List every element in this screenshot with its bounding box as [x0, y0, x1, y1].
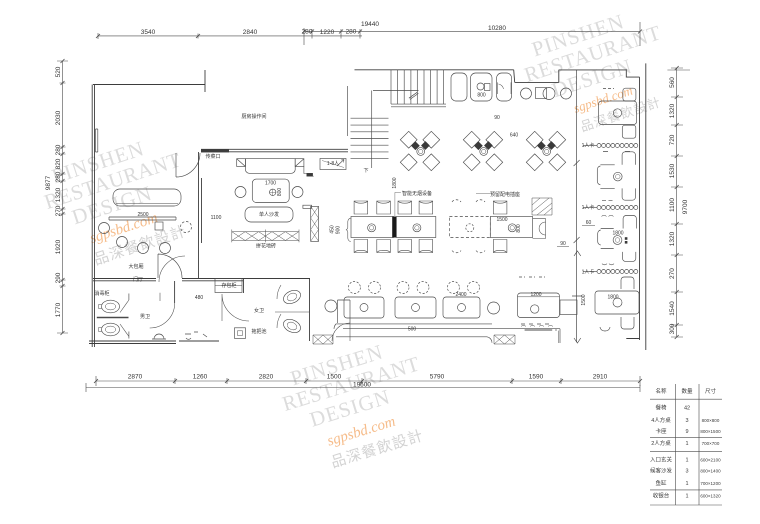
svg-text:800×1500: 800×1500: [700, 429, 721, 434]
svg-text:700×1200: 700×1200: [700, 481, 721, 486]
svg-text:1800: 1800: [612, 231, 623, 237]
svg-text:消毒柜: 消毒柜: [94, 290, 109, 297]
svg-text:2820: 2820: [259, 374, 274, 381]
svg-text:1530: 1530: [669, 163, 676, 178]
svg-text:560: 560: [669, 77, 676, 88]
svg-text:1220: 1220: [320, 29, 335, 36]
svg-text:90: 90: [494, 115, 500, 121]
svg-text:800: 800: [477, 93, 486, 99]
svg-text:1200: 1200: [530, 292, 541, 298]
svg-text:女卫: 女卫: [254, 307, 264, 314]
svg-text:9700: 9700: [682, 199, 689, 214]
svg-text:传菜口: 传菜口: [205, 153, 220, 160]
svg-text:1590: 1590: [529, 374, 544, 381]
svg-text:290: 290: [55, 272, 62, 283]
svg-text:拖把池: 拖把池: [251, 328, 266, 335]
svg-text:1人卡: 1人卡: [582, 204, 595, 211]
svg-text:1: 1: [685, 458, 688, 464]
svg-text:640: 640: [510, 133, 519, 139]
svg-text:数量: 数量: [681, 387, 693, 395]
svg-text:单人沙发: 单人沙发: [259, 211, 279, 218]
svg-text:600×2100: 600×2100: [700, 458, 721, 463]
svg-text:2840: 2840: [243, 29, 258, 36]
svg-text:3: 3: [685, 418, 688, 424]
svg-text:42: 42: [684, 406, 690, 412]
svg-text:1: 1: [685, 481, 688, 487]
svg-text:1-8人: 1-8人: [327, 161, 339, 167]
svg-text:1700: 1700: [265, 181, 276, 187]
svg-text:820: 820: [55, 158, 62, 169]
svg-text:2910: 2910: [593, 374, 608, 381]
svg-text:800×1400: 800×1400: [700, 469, 721, 474]
svg-text:1260: 1260: [193, 374, 208, 381]
svg-text:餐椅: 餐椅: [655, 404, 667, 412]
svg-text:2400: 2400: [455, 292, 466, 298]
svg-text:90: 90: [560, 241, 566, 247]
svg-text:9: 9: [685, 429, 688, 435]
svg-text:3: 3: [685, 469, 688, 475]
svg-text:1800: 1800: [607, 295, 618, 301]
svg-text:厨房操作间: 厨房操作间: [241, 113, 266, 120]
svg-text:1: 1: [685, 441, 688, 447]
svg-text:700×700: 700×700: [702, 441, 720, 446]
svg-text:280: 280: [55, 171, 62, 182]
svg-text:入口玄关: 入口玄关: [650, 456, 673, 464]
svg-text:4人方桌: 4人方桌: [651, 416, 671, 424]
svg-text:520: 520: [55, 66, 62, 77]
svg-text:卡座: 卡座: [655, 427, 667, 435]
svg-text:280: 280: [55, 144, 62, 155]
svg-text:19600: 19600: [353, 382, 371, 389]
svg-text:1800: 1800: [392, 177, 398, 188]
svg-text:480: 480: [195, 295, 204, 301]
svg-text:1320: 1320: [669, 103, 676, 118]
svg-text:1100: 1100: [669, 198, 676, 212]
svg-text:280: 280: [302, 29, 313, 36]
svg-text:预留配电插座: 预留配电插座: [490, 191, 520, 198]
svg-text:拼花地砖: 拼花地砖: [256, 243, 276, 250]
svg-text:存包柜: 存包柜: [221, 282, 236, 289]
svg-text:9877: 9877: [45, 175, 52, 190]
svg-text:500: 500: [408, 327, 417, 333]
svg-text:候客沙发: 候客沙发: [650, 467, 673, 475]
svg-text:720: 720: [669, 134, 676, 145]
svg-text:1500: 1500: [496, 217, 507, 223]
svg-text:800: 800: [277, 188, 283, 197]
svg-text:270: 270: [669, 268, 676, 279]
svg-text:1320: 1320: [669, 231, 676, 246]
svg-text:下: 下: [363, 168, 368, 174]
svg-text:1920: 1920: [55, 239, 62, 254]
svg-text:2500: 2500: [137, 212, 148, 218]
svg-text:900: 900: [336, 226, 342, 235]
svg-text:1540: 1540: [669, 301, 676, 316]
svg-text:1500: 1500: [581, 294, 587, 305]
svg-text:尺寸: 尺寸: [705, 387, 717, 395]
svg-text:5790: 5790: [430, 374, 445, 381]
svg-text:1320: 1320: [55, 187, 62, 202]
svg-text:2030: 2030: [55, 110, 62, 125]
svg-text:19440: 19440: [361, 21, 379, 28]
svg-text:800×800: 800×800: [702, 418, 720, 423]
svg-text:1500: 1500: [327, 374, 342, 381]
svg-text:1770: 1770: [55, 302, 62, 317]
svg-text:大包厢: 大包厢: [128, 263, 143, 270]
svg-text:智能无烟设备: 智能无烟设备: [402, 190, 432, 197]
svg-text:1人卡: 1人卡: [582, 142, 595, 149]
svg-text:1: 1: [685, 493, 688, 499]
svg-text:600×1320: 600×1320: [700, 493, 721, 498]
svg-text:3540: 3540: [141, 29, 156, 36]
svg-text:270: 270: [55, 205, 62, 216]
svg-text:10280: 10280: [488, 25, 506, 32]
svg-text:1100: 1100: [211, 215, 222, 221]
svg-text:1人卡: 1人卡: [582, 269, 595, 276]
svg-text:名称: 名称: [655, 387, 667, 395]
svg-text:800: 800: [516, 224, 522, 233]
svg-text:300: 300: [669, 323, 676, 334]
svg-text:280: 280: [346, 29, 357, 36]
svg-text:2人方桌: 2人方桌: [651, 439, 671, 447]
svg-text:男卫: 男卫: [140, 314, 150, 320]
svg-text:门厅: 门厅: [133, 276, 143, 283]
svg-text:鱼缸: 鱼缸: [655, 479, 667, 487]
svg-text:收银台: 收银台: [653, 491, 670, 499]
svg-text:2870: 2870: [128, 374, 143, 381]
